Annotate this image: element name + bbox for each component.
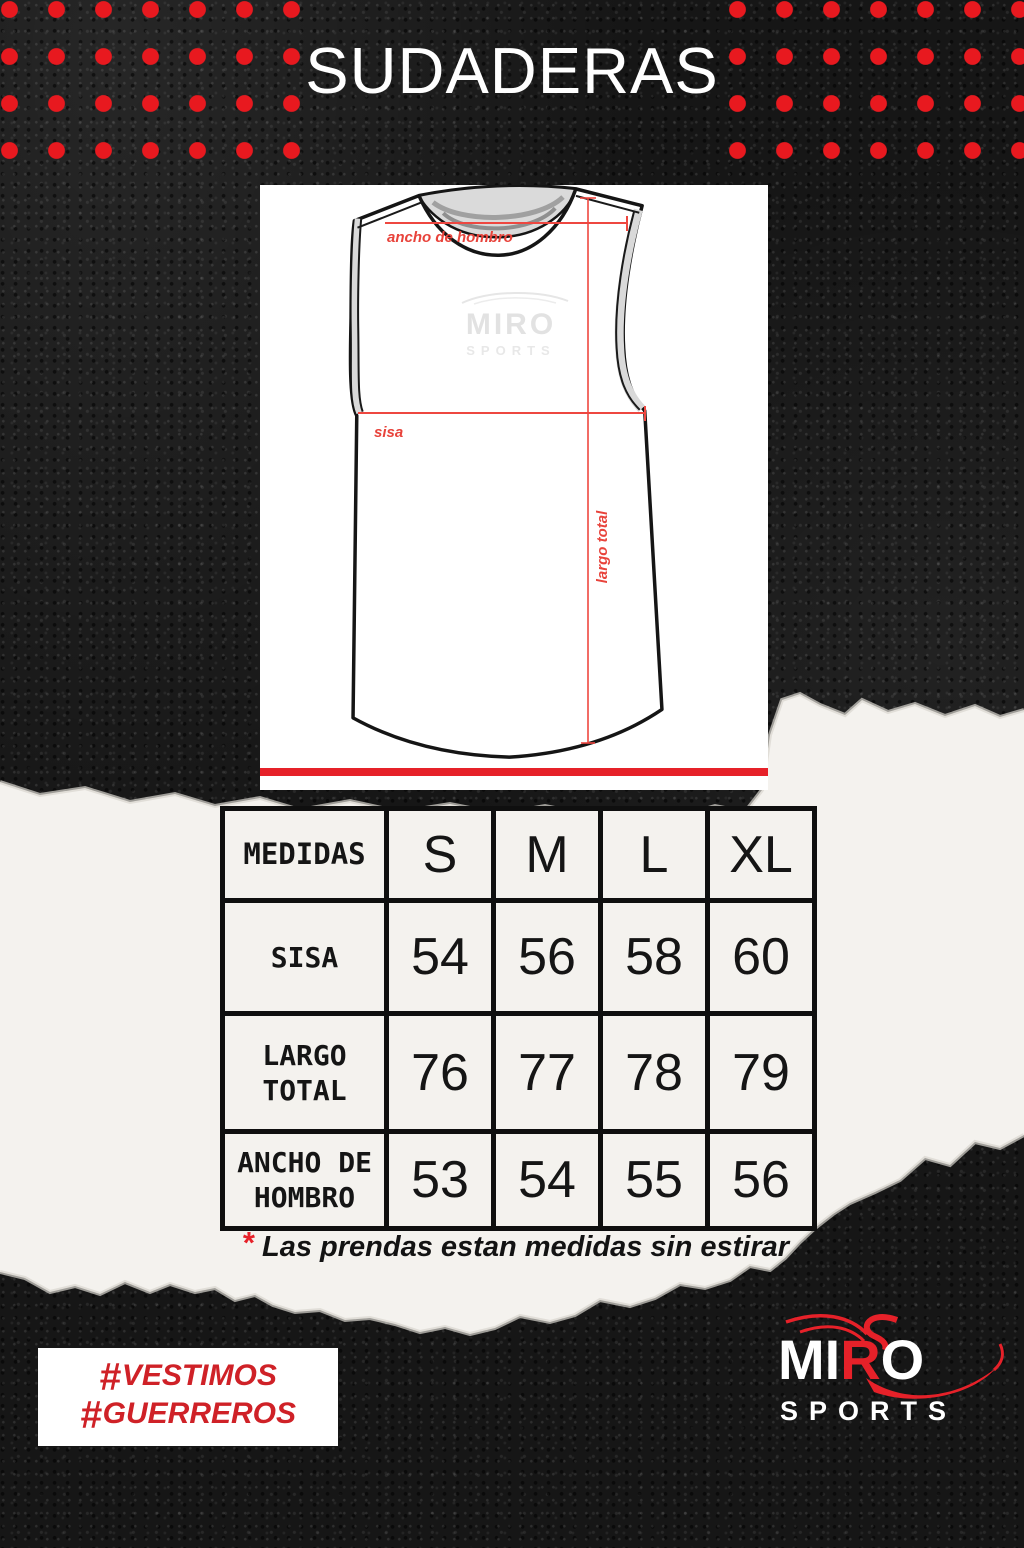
value-sisa-l: 58 bbox=[601, 901, 708, 1014]
watermark-swoosh-icon bbox=[428, 289, 594, 305]
brand-sub-text: SPORTS bbox=[780, 1396, 957, 1427]
brand-mi: MI bbox=[778, 1328, 840, 1391]
value-largo-s: 76 bbox=[387, 1014, 494, 1132]
note-text: Las prendas estan medidas sin estirar bbox=[262, 1231, 789, 1263]
value-sisa-s: 54 bbox=[387, 901, 494, 1014]
measurement-note: *Las prendas estan medidas sin estirar bbox=[220, 1228, 812, 1264]
value-ancho-xl: 56 bbox=[708, 1132, 815, 1229]
value-ancho-m: 54 bbox=[494, 1132, 601, 1229]
tank-top-diagram: ancho de hombro sisa largo total bbox=[260, 185, 768, 790]
label-chest: sisa bbox=[374, 424, 403, 441]
brand-r: R bbox=[840, 1328, 880, 1391]
value-largo-xl: 79 bbox=[708, 1014, 815, 1132]
value-largo-m: 77 bbox=[494, 1014, 601, 1132]
label-shoulder-width: ancho de hombro bbox=[387, 229, 513, 246]
brand-o: O bbox=[881, 1328, 925, 1391]
value-ancho-l: 55 bbox=[601, 1132, 708, 1229]
hashtag-line-guerreros: #GUERREROS bbox=[80, 1397, 296, 1435]
table-header-row: MEDIDAS S M L XL bbox=[223, 809, 815, 901]
row-label-ancho-hombro: ANCHO DE HOMBRO bbox=[223, 1132, 387, 1229]
note-asterisk: * bbox=[243, 1225, 255, 1260]
brand-wordmark: MIRO bbox=[778, 1332, 924, 1388]
header-medidas: MEDIDAS bbox=[223, 809, 387, 901]
row-label-sisa: SISA bbox=[223, 901, 387, 1014]
header-size-l: L bbox=[601, 809, 708, 901]
size-chart-flyer: SUDADERAS bbox=[0, 0, 1024, 1548]
label-length: largo total bbox=[594, 510, 611, 583]
size-table: MEDIDAS S M L XL SISA 54 56 58 60 LARGO … bbox=[220, 806, 817, 1231]
table-row-ancho-hombro: ANCHO DE HOMBRO 53 54 55 56 bbox=[223, 1132, 815, 1229]
diagram-panel: ancho de hombro sisa largo total MIRO SP… bbox=[260, 185, 768, 790]
value-sisa-m: 56 bbox=[494, 901, 601, 1014]
brand-logo: MIRO SPORTS bbox=[766, 1308, 1016, 1453]
header-size-s: S bbox=[387, 809, 494, 901]
page-title: SUDADERAS bbox=[0, 38, 1024, 103]
watermark-brand-text: MIRO bbox=[428, 310, 594, 340]
red-divider-bar bbox=[260, 768, 768, 776]
tank-top-body bbox=[344, 185, 663, 760]
table-row-sisa: SISA 54 56 58 60 bbox=[223, 901, 815, 1014]
hash-symbol: # bbox=[99, 1356, 121, 1399]
watermark-logo: MIRO SPORTS bbox=[428, 289, 594, 357]
hashtag-word: VESTIMOS bbox=[122, 1359, 277, 1392]
watermark-sub-text: SPORTS bbox=[428, 344, 594, 357]
hash-symbol: # bbox=[80, 1394, 102, 1437]
value-largo-l: 78 bbox=[601, 1014, 708, 1132]
table-row-largo-total: LARGO TOTAL 76 77 78 79 bbox=[223, 1014, 815, 1132]
row-label-largo-total: LARGO TOTAL bbox=[223, 1014, 387, 1132]
header-size-xl: XL bbox=[708, 809, 815, 901]
value-sisa-xl: 60 bbox=[708, 901, 815, 1014]
hashtag-line-vestimos: #VESTIMOS bbox=[99, 1359, 277, 1397]
value-ancho-s: 53 bbox=[387, 1132, 494, 1229]
hashtag-box: #VESTIMOS #GUERREROS bbox=[38, 1348, 338, 1446]
header-size-m: M bbox=[494, 809, 601, 901]
hashtag-word: GUERREROS bbox=[103, 1397, 296, 1430]
